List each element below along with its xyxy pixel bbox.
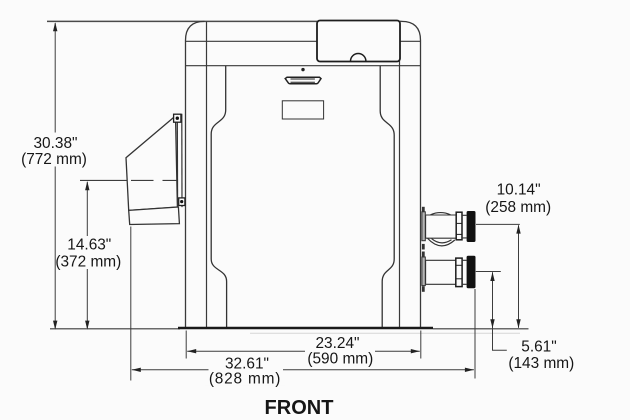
svg-text:14.63": 14.63"	[67, 237, 111, 254]
svg-text:(372 mm): (372 mm)	[55, 253, 121, 270]
svg-text:30.38": 30.38"	[34, 135, 78, 152]
svg-text:(828 mm): (828 mm)	[209, 371, 281, 388]
svg-text:5.61": 5.61"	[521, 338, 556, 355]
svg-text:(772 mm): (772 mm)	[21, 151, 87, 168]
svg-text:(258 mm): (258 mm)	[485, 199, 551, 216]
svg-text:10.14": 10.14"	[497, 181, 541, 198]
svg-text:(143 mm): (143 mm)	[508, 355, 574, 372]
svg-text:(590 mm): (590 mm)	[307, 351, 373, 368]
svg-text:FRONT: FRONT	[265, 397, 334, 419]
svg-text:23.24": 23.24"	[316, 335, 360, 352]
